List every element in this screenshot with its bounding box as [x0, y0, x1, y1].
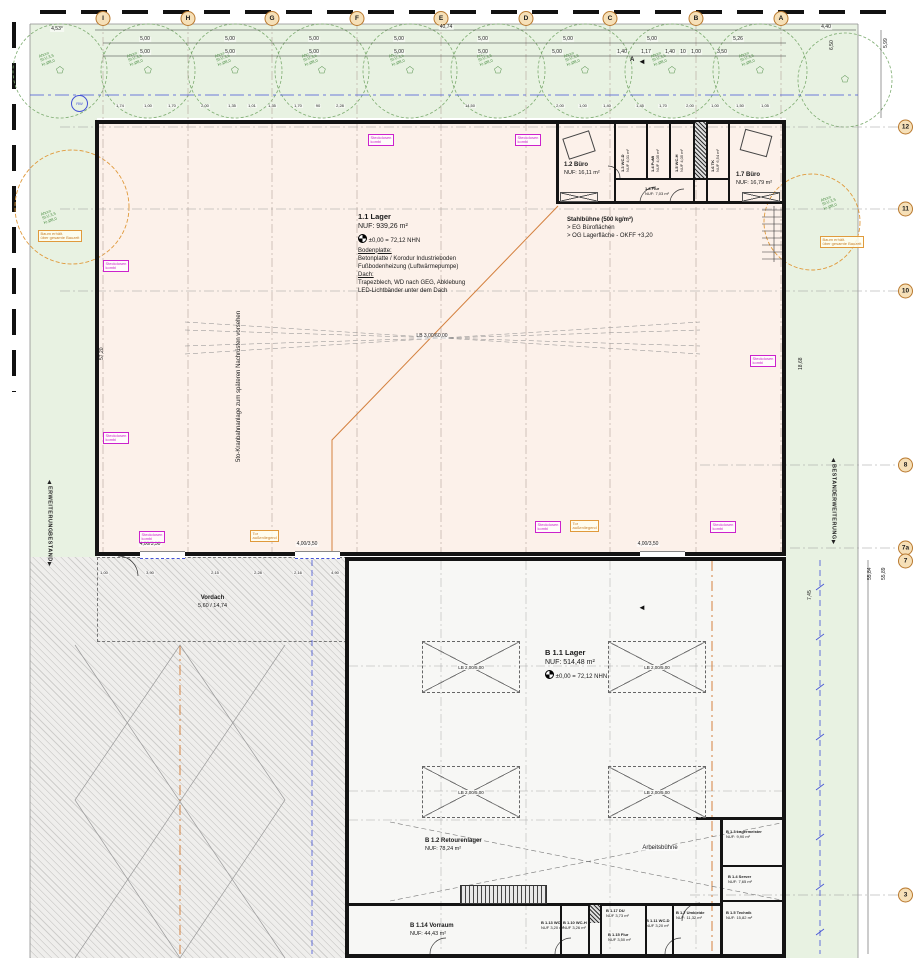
b-wall: [645, 903, 647, 956]
b-hall-label-block: B 1.1 Lager NUF: 514,48 m² ±0,00 = 72,12…: [545, 648, 607, 681]
edge-marker-text: ERWEITERUNG: [46, 486, 52, 533]
dim: 5,00: [393, 37, 405, 42]
b-wall: [672, 903, 674, 956]
b-wall: [696, 817, 786, 820]
dim: 1,70: [658, 104, 668, 108]
office-wall: [556, 120, 559, 204]
room-label-1-2: 1.2 BüroNUF: 16,11 m²: [564, 162, 600, 176]
dim: 1,40: [602, 104, 612, 108]
dim: 2,16: [293, 571, 303, 575]
dim: 5,26: [732, 37, 744, 42]
tree-icon: ⬠: [406, 65, 414, 76]
room-label-b1-15: B 1.15 FlurNUF 3,50 m²: [608, 932, 631, 942]
dim: 5,00: [477, 37, 489, 42]
tree-icon: ⬠: [668, 65, 676, 76]
dim: 6,50: [830, 40, 835, 50]
dim: 55,89: [882, 567, 887, 580]
office-wall: [669, 120, 671, 178]
dim-total: 40,74: [439, 25, 454, 30]
steckdosen-note: Steckdosenkombi: [710, 521, 736, 533]
room-label-1-5: 1.5 WC-HNUF 4,05 m²: [674, 149, 684, 172]
dim: 1,50: [735, 104, 745, 108]
hall-note-line: Fußbodenheizung (Luftwärmepumpe): [358, 263, 465, 271]
steckdosen-note: Steckdosenkombi: [515, 134, 541, 146]
level-symbol: [545, 670, 554, 679]
dim: 5,00: [308, 37, 320, 42]
dim: 5,00: [393, 50, 405, 55]
hall-name: 1.1 Lager: [358, 212, 465, 222]
stahlbuehne-block: Stahlbühne (500 kg/m²) > EG Büroflächen …: [567, 216, 653, 240]
dim: 14,50: [464, 104, 476, 108]
hall-note-title: Bodenplatte:: [358, 247, 465, 255]
hall-wall-right: [782, 120, 786, 556]
dim: 1,01: [247, 104, 257, 108]
office-wall: [614, 120, 616, 204]
window-sill: [742, 192, 780, 202]
room-label-b1-17: B 1.17 DUNUF 3,73 m²: [606, 908, 629, 918]
hall-level: ±0,00 = 72,12 NHN: [358, 234, 465, 245]
rw-manhole: RW: [71, 95, 88, 112]
lb-mark: LB 2,00/5,00: [422, 766, 520, 818]
lb-mark: LB 2,00/5,00: [608, 641, 706, 693]
tree-icon: ⬠: [231, 65, 239, 76]
dim-angle: 4,53°: [50, 27, 64, 32]
dim: 3,50: [716, 50, 728, 55]
tree-icon: ⬠: [144, 65, 152, 76]
room-label-b1-5: B 1.5 TechnikNUF: 15,82 m²: [726, 910, 752, 920]
dim: 5,00: [551, 50, 563, 55]
dim: 1,45: [635, 104, 645, 108]
dim: 2,15: [210, 571, 220, 575]
room-label-b1-3: B 1.3 LagermeisterNUF: 9,90 m²: [726, 829, 762, 839]
axis-bubble: I: [96, 11, 111, 26]
b-hall-level: ±0,00 = 72,12 NHN: [545, 670, 607, 681]
dim: 1,00: [710, 104, 720, 108]
dim: 7,45: [808, 590, 813, 600]
gate-size-label: 4,00/3,50: [637, 542, 660, 547]
gate-opening: [295, 551, 340, 559]
b-hall-area: NUF: 514,48 m²: [545, 658, 607, 667]
room-label-1-6: 1.6 TKNUF 6,54 m²: [710, 149, 720, 172]
hall-note-line: LED-Lichtbänder unter dem Dach: [358, 287, 465, 295]
dim: 2,00: [200, 104, 210, 108]
dim: 18,68: [799, 357, 804, 370]
room-label-b1-11: B 1.11 WC-DNUF 3,20 m²: [646, 918, 670, 928]
axis-bubble: 11: [898, 202, 913, 217]
dim: 3,90: [145, 571, 155, 575]
hall-label-block: 1.1 Lager NUF: 939,26 m² ±0,00 = 72,12 N…: [358, 212, 465, 295]
gate-opening: [140, 551, 185, 559]
axis-bubble: G: [265, 11, 280, 26]
lb-mark: LB 2,00/5,00: [608, 766, 706, 818]
room-label-b1-7: B 1.7 UmkleideNUF: 11,32 m²: [676, 910, 704, 920]
dim: 2,00: [685, 104, 695, 108]
axis-bubble: 7: [898, 554, 913, 569]
dim: 5,00: [477, 50, 489, 55]
steckdosen-note: Steckdosenkombi: [535, 521, 561, 533]
dim: 1,35: [227, 104, 237, 108]
dim: 10: [679, 50, 687, 55]
room-label-b1-2: B 1.2 RetourenlagerNUF: 78,24 m²: [425, 838, 482, 852]
dim: 1,05: [760, 104, 770, 108]
axis-bubble: 12: [898, 120, 913, 135]
dim: 1,35: [267, 104, 277, 108]
steckdosen-note: Steckdosenkombi: [103, 432, 129, 444]
arrow-down-icon: ▼: [830, 540, 837, 546]
shaft: [695, 122, 706, 178]
section-marker-icon: ◄: [638, 58, 646, 66]
room-label-b1-4: B 1.4 ServerNUF: 7,65 m²: [728, 874, 752, 884]
dim: 1,70: [167, 104, 177, 108]
axis-bubble: H: [181, 11, 196, 26]
dim: 1,40: [664, 50, 676, 55]
office-wall: [646, 120, 648, 178]
vordach-label: Vordach 5,60 / 14,74: [198, 595, 227, 609]
dim: 1,00: [578, 104, 588, 108]
hall-note-line: Trapezblech, WD nach GEG, Abklebung: [358, 279, 465, 287]
axis-bubble: 10: [898, 284, 913, 299]
dim: 2,28: [335, 104, 345, 108]
dim: 1,00: [143, 104, 153, 108]
dim: 5,00: [224, 37, 236, 42]
edge-marker-text: ERWEITERUNG: [830, 493, 836, 540]
tree-retention-note: Baum erhält.über gesamte Bauzeit: [38, 230, 82, 242]
tree-icon: ⬠: [56, 65, 64, 76]
section-marker-letter: A: [630, 57, 634, 63]
dim: 57,20: [100, 347, 105, 360]
b-wall: [720, 865, 786, 867]
b-hall-name: B 1.1 Lager: [545, 648, 607, 658]
axis-bubble: 3: [898, 888, 913, 903]
tor-note: Toraußenliegend: [570, 520, 599, 532]
axis-bubble: D: [519, 11, 534, 26]
b-wall: [720, 817, 723, 957]
tree-icon: ⬠: [581, 65, 589, 76]
tor-note: Toraußenliegend: [250, 530, 279, 542]
dim: 1,00: [99, 571, 109, 575]
b-wall: [720, 900, 786, 902]
dim: 5,00: [646, 37, 658, 42]
arbeitsbuehne-stair: [460, 885, 547, 904]
hall-wall-left: [95, 120, 99, 556]
dim: 1,74: [115, 104, 125, 108]
room-label-1-3: 1.3 WC-DNUF 4,01 m²: [620, 149, 630, 172]
dim: 5,00: [308, 50, 320, 55]
dim: 5,00: [224, 50, 236, 55]
b-wall-top: [345, 557, 786, 561]
axis-bubble: F: [350, 11, 365, 26]
edge-marker-left: ▲ ERWEITERUNG BESTAND ▼: [46, 480, 53, 568]
stahlbuehne-line: > OG Lagerfläche - OKFF +3,20: [567, 232, 653, 240]
office-wall: [706, 120, 708, 204]
steckdosen-note: Steckdosenkombi: [368, 134, 394, 146]
hall-note-line: Betonplatte / Korodur Industrieboden: [358, 255, 465, 263]
steckdosen-note: Steckdosenkombi: [103, 260, 129, 272]
tree-icon: ⬠: [756, 65, 764, 76]
arrow-down-icon: ▼: [46, 562, 53, 568]
dim: 1,40: [616, 50, 628, 55]
room-label-b1-10: B 1.10 WC-HNUF 3,26 m²: [563, 920, 587, 930]
hall-wall-top: [95, 120, 786, 124]
axis-bubble: A: [774, 11, 789, 26]
crane-note: 5to-Kranbahnanlage zum späteren Nachrüst…: [236, 311, 242, 462]
room-label-b1-14: B 1.14 VorraumNUF: 44,43 m²: [410, 923, 454, 937]
dim: 2,00: [555, 104, 565, 108]
hall-note-title: Dach:: [358, 271, 465, 279]
axis-bubble: 8: [898, 458, 913, 473]
window-sill: [560, 192, 598, 202]
section-marker-icon: ◄: [638, 604, 646, 612]
floor-plan: IHGFEDCBA 12111087a73 ⬠ ⬠ ⬠ ⬠ ⬠ ⬠ ⬠ ⬠ ⬠ …: [0, 0, 915, 960]
dim: 1,70: [293, 104, 303, 108]
dim: 4,90: [330, 571, 340, 575]
axis-bubble: C: [603, 11, 618, 26]
gate-size-label: 4,00/3,50: [296, 542, 319, 547]
dim: 1,17: [640, 50, 652, 55]
b-wall-right: [782, 557, 786, 958]
tree-retention-note: Baum erhält.über gesamte Bauzeit: [820, 236, 864, 248]
room-label-1-7: 1.7 BüroNUF: 16,79 m²: [736, 172, 772, 186]
steckdosen-note: Steckdosenkombi: [750, 355, 776, 367]
dim: 55,84: [868, 567, 873, 580]
arbeitsbuehne-label: Arbeitsbühne: [641, 845, 678, 851]
tree-icon: ⬠: [318, 65, 326, 76]
b-wall-left: [345, 557, 349, 958]
rw-label: RW: [76, 101, 83, 106]
room-label-1-8: 1.8 FlurNUF: 7,03 m²: [645, 186, 669, 196]
room-label-b1-13: B 1.13 WCNUF 3,20 m²: [541, 920, 564, 930]
stahlbuehne-line: > EG Büroflächen: [567, 224, 653, 232]
dim: 5,99: [884, 38, 889, 48]
dim: 5,00: [139, 37, 151, 42]
dim: 2,28: [253, 571, 263, 575]
edge-marker-text: BESTAND: [830, 464, 836, 494]
hall-area: NUF: 939,26 m²: [358, 222, 465, 231]
axis-bubble: B: [689, 11, 704, 26]
hall-lb-label: LB 3,00/60,00: [415, 334, 448, 339]
room-label-1-4: 1.4 PuMiNUF 4,05 m²: [650, 149, 660, 172]
dim: 5,00: [562, 37, 574, 42]
dim-right-end: 4,40: [820, 25, 832, 30]
office-wall: [728, 120, 730, 204]
dim: 90: [315, 104, 321, 108]
b-wall: [600, 903, 602, 956]
dim: 1,00: [690, 50, 702, 55]
dim: 5,00: [139, 50, 151, 55]
office-wall-flur: [614, 178, 730, 180]
level-symbol: [358, 234, 367, 243]
b-shaft: [590, 905, 600, 923]
tree-icon: ⬠: [841, 74, 849, 85]
tree-icon: ⬠: [494, 65, 502, 76]
steckdosen-note: Steckdosenkombi: [139, 531, 165, 543]
edge-marker-text: BESTAND: [46, 532, 52, 562]
stahlbuehne-title: Stahlbühne (500 kg/m²): [567, 216, 653, 224]
lb-mark: LB 2,00/5,00: [422, 641, 520, 693]
edge-marker-right: ▲ BESTAND ERWEITERUNG ▼: [830, 458, 837, 546]
